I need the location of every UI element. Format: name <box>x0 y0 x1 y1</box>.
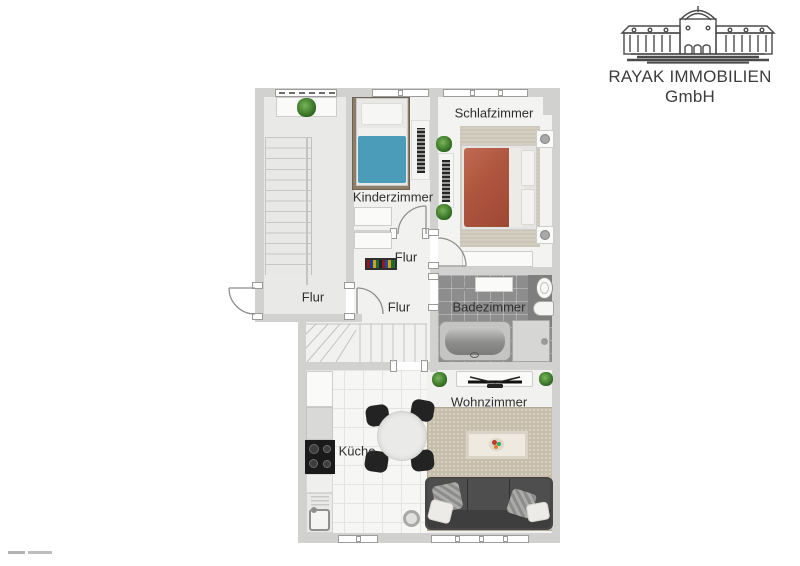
room-label-schlafzimmer: Schlafzimmer <box>455 106 534 121</box>
staircase-down <box>306 324 427 362</box>
room-label-flur-mitte: Flur <box>395 250 417 265</box>
room-label-flur-treppenhaus: Flur <box>302 290 324 305</box>
watermark-smudge <box>8 551 54 554</box>
room-label-wohnzimmer: Wohnzimmer <box>451 395 527 410</box>
room-label-badezimmer: Badezimmer <box>453 300 526 315</box>
room-label-flur-unten: Flur <box>388 300 410 315</box>
room-label-kueche: Küche <box>339 444 376 459</box>
room-label-kinderzimmer: Kinderzimmer <box>353 190 433 205</box>
floorplan-page: RAYAK IMMOBILIEN GmbH <box>0 0 800 566</box>
tv-icon <box>468 377 522 388</box>
plan-linework <box>0 0 800 566</box>
